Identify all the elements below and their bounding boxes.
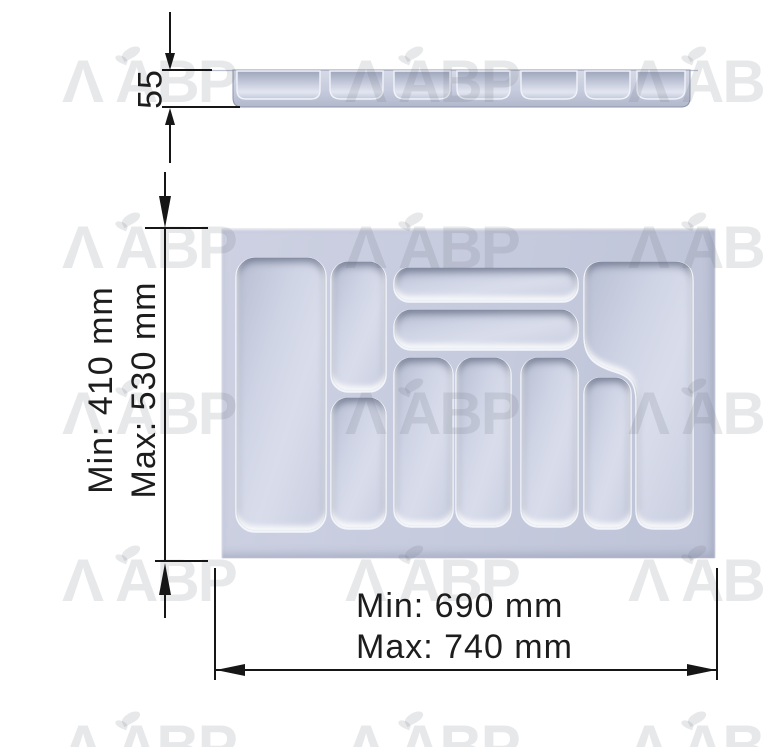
width-dim-max: Max: 740 mm [356, 627, 573, 668]
width-dim-arrow-left [216, 664, 245, 676]
watermark-logo: ΛABP [63, 557, 236, 605]
depth-dim-stem-top [164, 172, 166, 198]
watermark-leaf-icon [115, 46, 145, 68]
watermark-text: ABP [115, 557, 236, 605]
watermark-logo: ΛABP [629, 723, 767, 747]
watermark-leaf-icon [115, 212, 145, 234]
watermark-lambda: Λ [628, 723, 668, 747]
product-drawing-canvas: 55 Min: 410 mm Max: 530 mm Min: 690 mm M… [0, 0, 767, 747]
height-dim-stem-top [169, 12, 171, 56]
watermark-leaf-icon [398, 711, 428, 733]
height-dim-label: 55 [132, 69, 171, 109]
depth-dim-tick-top [145, 227, 208, 229]
watermark-text: ABP [115, 723, 236, 747]
tray-profile-cups [237, 71, 685, 99]
watermark-text: ABP [115, 224, 236, 272]
watermark-text: ABP [398, 723, 519, 747]
watermark-lambda: Λ [62, 58, 102, 106]
watermark-leaf-icon [115, 711, 145, 733]
depth-dim-arrow-up [159, 563, 171, 595]
watermark-logo: ΛABP [63, 723, 236, 747]
watermark-logo: ΛABP [629, 557, 767, 605]
height-dim-stem-bottom [169, 125, 171, 163]
tray-top-view [222, 229, 715, 558]
watermark-leaf-icon [681, 711, 711, 733]
depth-dim-tick-bottom [155, 560, 208, 562]
width-dim-line [216, 669, 716, 671]
height-dim-arrow-down [165, 53, 175, 70]
compartment-recesses [237, 258, 692, 530]
depth-dim-arrow-down [159, 196, 171, 228]
watermark-lambda: Λ [62, 723, 102, 747]
watermark-leaf-icon [115, 545, 145, 567]
depth-dim-min: Min: 410 mm [80, 282, 123, 499]
width-dim-arrow-right [687, 664, 716, 676]
tray-compartments [222, 229, 715, 558]
depth-dim-max: Max: 530 mm [123, 282, 166, 499]
watermark-lambda: Λ [62, 557, 102, 605]
tray-side-view [200, 58, 700, 116]
watermark-logo: ΛABP [63, 224, 236, 272]
watermark-lambda: Λ [62, 224, 102, 272]
watermark-lambda: Λ [628, 557, 668, 605]
watermark-lambda: Λ [345, 723, 385, 747]
watermark-text: ABP [681, 557, 767, 605]
watermark-text: ABP [681, 723, 767, 747]
depth-dim-stem-bottom [164, 595, 166, 618]
width-dim-ext-right [716, 568, 718, 680]
width-dim-label: Min: 690 mm Max: 740 mm [356, 586, 573, 668]
width-dim-min: Min: 690 mm [356, 586, 573, 627]
depth-dim-label: Min: 410 mm Max: 530 mm [80, 282, 166, 499]
watermark-logo: ΛABP [346, 723, 519, 747]
height-dim-arrow-up [165, 108, 175, 125]
